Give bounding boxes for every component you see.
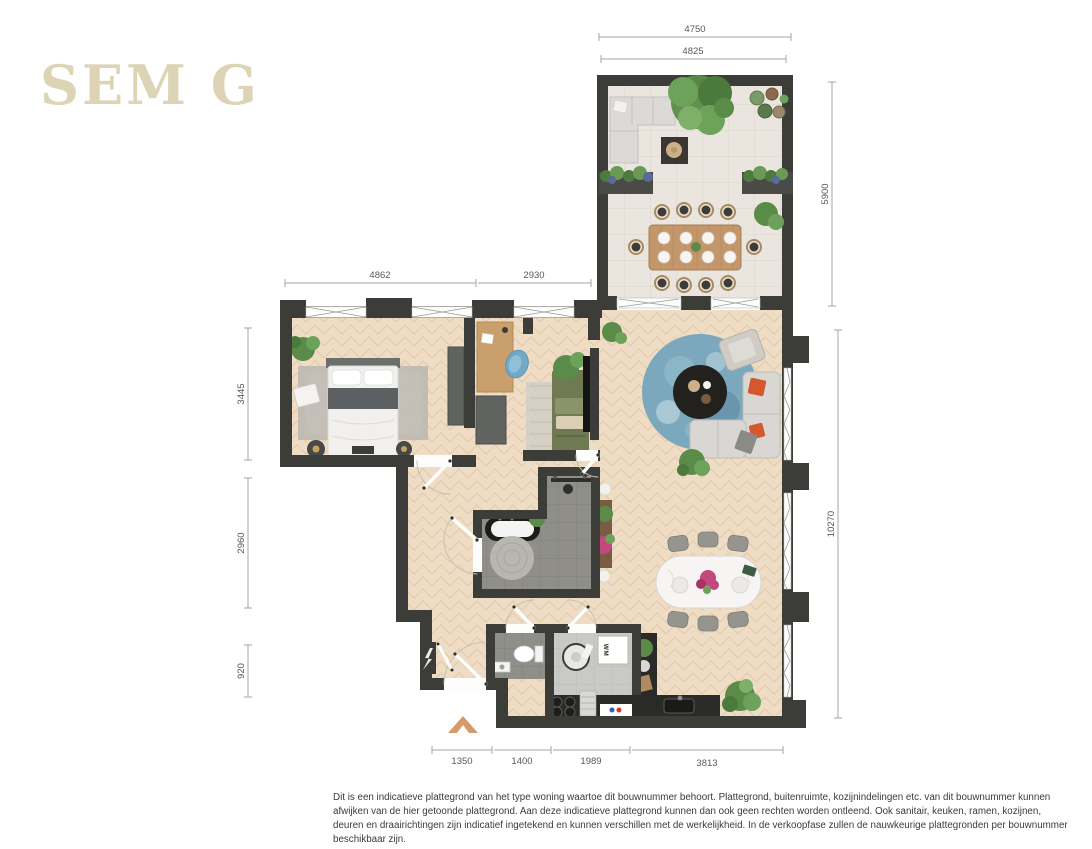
page: SEM G	[0, 0, 1092, 849]
floor-plan-svg: WM	[0, 0, 1092, 849]
dim-terrace-width-outer: 4750	[684, 24, 705, 35]
disclaimer-text: Dit is een indicatieve plattegrond van h…	[333, 791, 1070, 847]
dim-top-left-width: 4862	[369, 270, 390, 281]
window-right-3	[784, 625, 791, 697]
dim-bottom-4: 3813	[696, 758, 717, 769]
dining-area	[656, 532, 761, 631]
dim-bottom-1: 1350	[451, 756, 472, 767]
window-right-2	[784, 493, 791, 589]
dishwasher-indicator	[600, 704, 632, 717]
bathroom-rug	[490, 536, 534, 580]
window-top-1	[306, 307, 366, 318]
dim-left-middle: 2960	[236, 532, 247, 553]
dim-bottom-2: 1400	[511, 756, 532, 767]
dim-top-right-width: 2930	[523, 270, 544, 281]
dim-terrace-width-inner: 4825	[682, 46, 703, 57]
window-right-1	[784, 368, 791, 460]
dim-bottom-3: 1989	[580, 756, 601, 767]
terrace	[597, 75, 793, 328]
bed	[326, 358, 400, 456]
dim-right-height: 10270	[826, 511, 837, 537]
coffee-table	[673, 365, 727, 419]
tv-screen	[583, 356, 590, 432]
washing-machine-label: WM	[602, 644, 609, 657]
hall-cabinet	[476, 396, 506, 444]
terrace-coffee-table	[661, 137, 688, 164]
bedroom-wardrobe	[448, 347, 464, 425]
dim-left-upper: 3445	[236, 383, 247, 404]
sofa-pillow-orange-1	[748, 378, 767, 397]
window-top-3	[514, 307, 574, 318]
dim-left-lower: 920	[236, 663, 247, 679]
window-top-2	[412, 307, 472, 318]
dim-terrace-height: 5900	[820, 183, 831, 204]
kitchen-drawers	[580, 691, 596, 716]
entrance-arrow-icon	[448, 716, 478, 733]
toilet	[514, 646, 543, 662]
